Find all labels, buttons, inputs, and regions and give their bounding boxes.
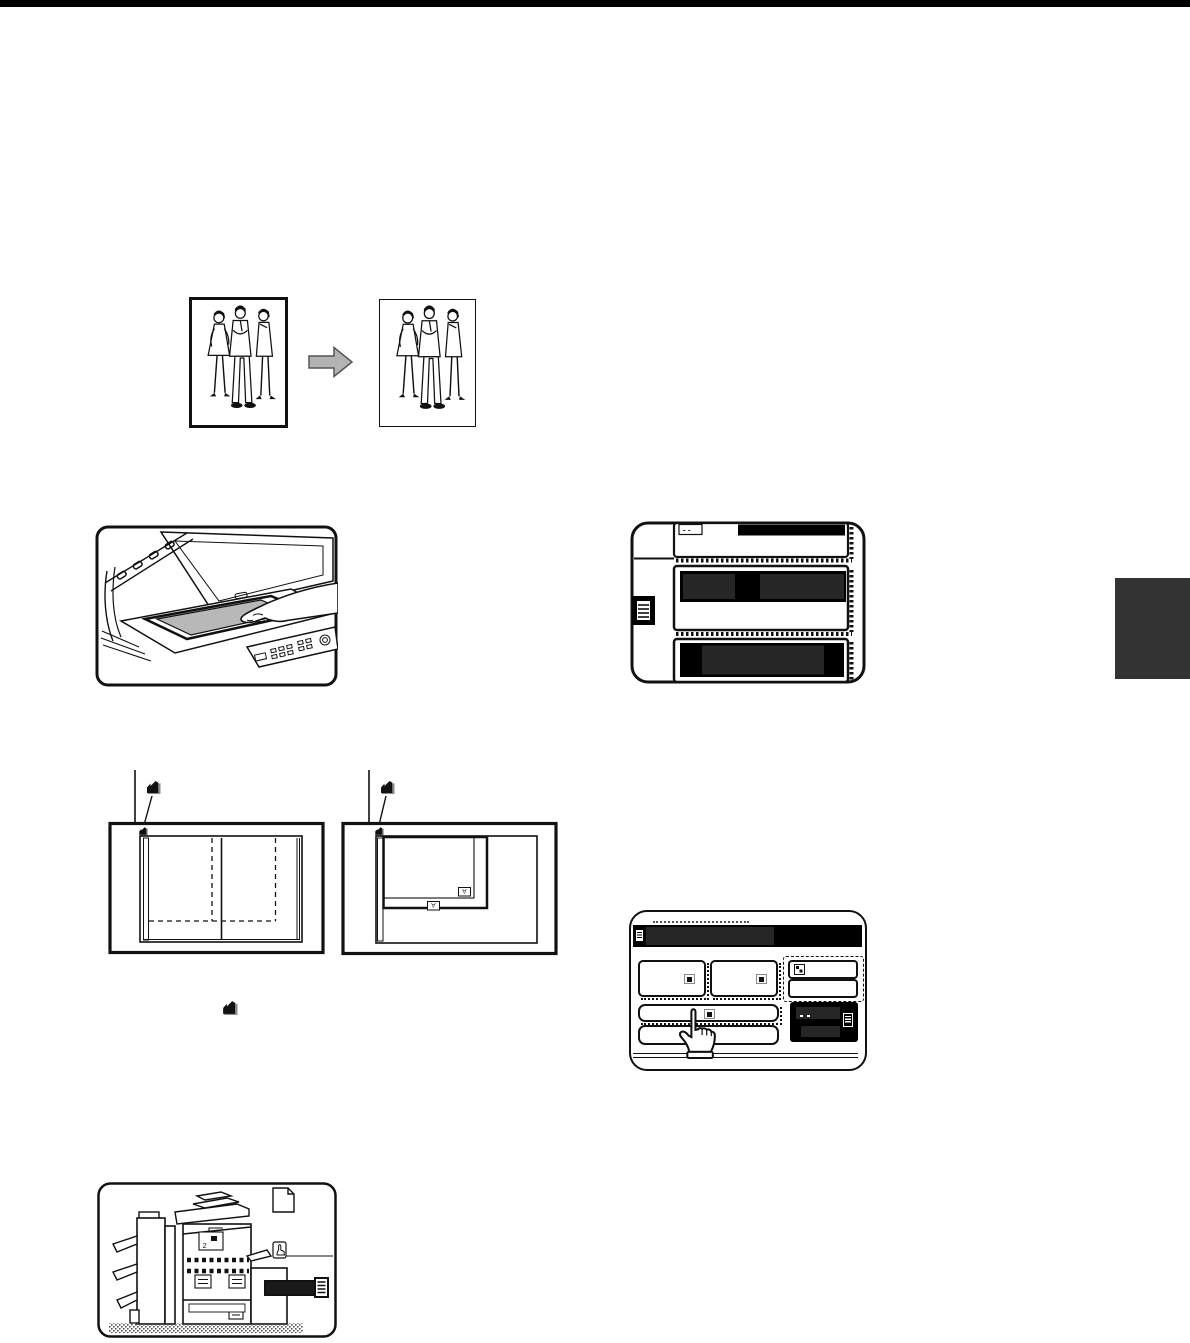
handle-icon	[632, 596, 655, 625]
tray-display-segment	[683, 574, 735, 599]
screen-key-group	[783, 956, 864, 1002]
size-label-outer-box: A	[428, 901, 440, 910]
tray-bottom	[674, 639, 852, 682]
arrow-right-icon	[308, 346, 354, 378]
paper-tray-illustration: - -	[630, 521, 870, 685]
callout-line	[144, 796, 152, 825]
tray-size-marks: - -	[683, 526, 691, 535]
hand-in-box-icon	[273, 1242, 286, 1258]
size-label: A	[462, 887, 467, 894]
index-mark-icon	[147, 781, 161, 794]
header-title-redacted	[646, 927, 774, 945]
machine-illustration: 2	[97, 1182, 337, 1339]
screen-group-key-1	[788, 960, 858, 979]
size-label: A	[431, 901, 436, 908]
screen-key-1	[638, 960, 706, 997]
bezel-line	[633, 1053, 858, 1054]
status-redacted	[796, 1007, 840, 1019]
screen-key-2	[710, 960, 778, 997]
screen-group-key-2	[788, 979, 858, 998]
screen-header-bar	[633, 925, 862, 947]
screen-status-panel	[790, 1002, 858, 1042]
index-mark-icon	[381, 781, 395, 794]
document-icon	[636, 930, 643, 941]
key-icon	[794, 964, 805, 975]
status-dots	[800, 1015, 803, 1017]
open-book	[140, 836, 302, 942]
platen-illustration	[95, 525, 338, 687]
bezel-line	[633, 1057, 858, 1058]
book-placement-diagram	[108, 770, 326, 956]
status-redacted	[801, 1026, 840, 1037]
original-size-diagram: A A	[341, 770, 559, 956]
key-icon	[756, 974, 767, 984]
index-mark-icon	[221, 999, 238, 1016]
people-illustration	[380, 300, 475, 426]
pointing-hand-icon	[673, 1006, 720, 1060]
callout-line	[379, 796, 386, 825]
tray-display-segment	[702, 646, 824, 675]
booklet-icon	[315, 1278, 328, 1297]
ground-texture	[109, 1323, 303, 1333]
size-label-inner-box: A	[459, 887, 471, 896]
people-illustration	[192, 300, 285, 425]
tray-display-segment	[760, 574, 844, 599]
screen-top-dotted-line	[653, 921, 749, 923]
page-icon	[273, 1188, 294, 1212]
key-icon	[684, 974, 695, 984]
copy-photo-frame	[379, 299, 476, 427]
arrow-shape	[309, 348, 352, 377]
label-bar	[265, 1281, 317, 1295]
original-photo-frame	[189, 297, 288, 428]
booklet-icon	[843, 1013, 853, 1027]
document-glass	[376, 836, 537, 943]
chapter-edge-tab	[1115, 578, 1190, 679]
page-top-bleed-bar	[0, 0, 1190, 7]
tray-top: - -	[674, 523, 852, 561]
panel-number: 2	[203, 1241, 207, 1250]
tray-middle	[674, 566, 852, 634]
touch-screen-illustration	[629, 910, 867, 1071]
